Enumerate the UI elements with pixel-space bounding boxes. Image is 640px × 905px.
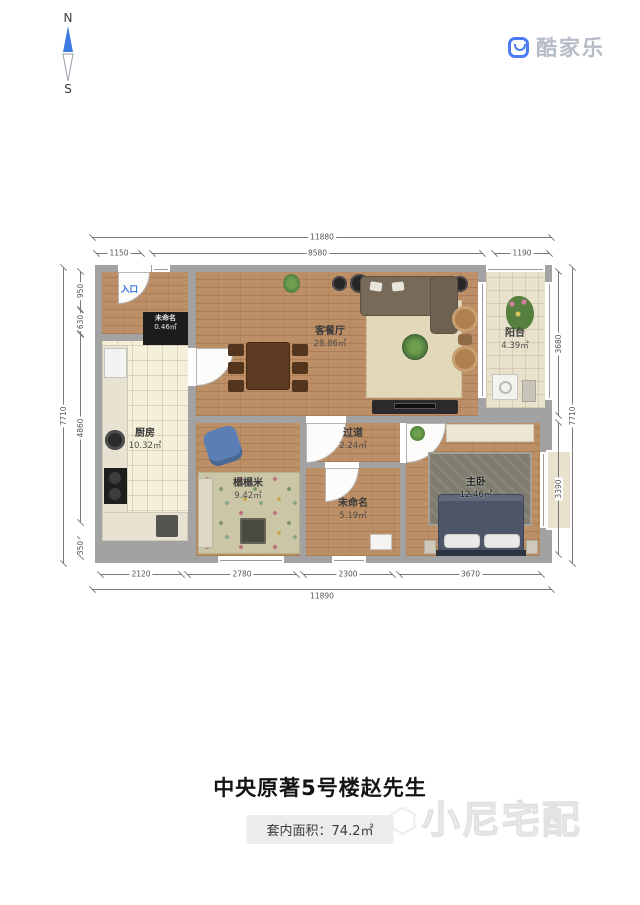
dim-left-overall: 7710 (63, 268, 64, 563)
dimension-label: 630 (77, 313, 85, 331)
dimension-label: 1150 (107, 249, 130, 257)
brand-logo: 酷家乐 (508, 32, 605, 62)
room-label-kitchen: 厨房 10.32㎡ (115, 428, 175, 451)
room-area: 2.24㎡ (327, 441, 379, 452)
dim-left-seg-4: 350 (80, 540, 81, 556)
wardrobe (198, 478, 213, 548)
balcony-cabinet (522, 380, 536, 402)
dim-left-seg-3: 4860 (80, 334, 81, 522)
dim-bottom-seg-1: 2120 (100, 574, 182, 575)
room-label-living: 客餐厅 28.86㎡ (302, 326, 358, 349)
tatami-window (218, 556, 284, 563)
kitchen-appliance (156, 515, 178, 537)
dimension-label: 2300 (336, 570, 359, 578)
washer-door-icon (499, 381, 512, 394)
inner-area-badge: 套内面积：74.2㎡ (247, 815, 394, 844)
room-area: 5.19㎡ (325, 511, 381, 522)
room-label-hallway: 过道 2.24㎡ (327, 428, 379, 451)
tv-screen (394, 403, 436, 409)
pillow (369, 281, 382, 292)
plant (410, 426, 425, 441)
dimension-label: 350 (77, 539, 85, 557)
dim-right-seg-2: 3390 (558, 423, 559, 554)
room-name: 客餐厅 (302, 326, 358, 339)
room-label-unnamed: 未命名 5.19㎡ (325, 498, 381, 521)
rattan-chair (452, 346, 478, 372)
unnamed-window (332, 556, 366, 563)
pillow (484, 534, 520, 548)
dim-bottom-seg-4: 3670 (399, 574, 542, 575)
entrance-door-opening (118, 265, 151, 272)
dresser (446, 424, 534, 442)
compass: N S (50, 12, 86, 96)
room-area: 0.46㎡ (143, 323, 188, 332)
dining-table (246, 342, 290, 390)
room-label-master: 主卧 12.46㎡ (448, 477, 504, 500)
plan-title: 中央原著5号楼赵先生 (0, 772, 640, 802)
dimension-label: 1190 (510, 249, 533, 257)
room-label-closet: 未命名 0.46㎡ (143, 314, 188, 332)
compass-north-label: N (64, 12, 73, 25)
balcony-sliding-door (478, 282, 486, 398)
dim-top-overall: 11880 (92, 237, 552, 238)
hallway-door-opening (306, 416, 346, 423)
speaker (332, 276, 347, 291)
washing-machine (492, 374, 518, 400)
dining-chair (228, 344, 244, 356)
watermark: ⬡ 小尼宅配 (388, 798, 582, 844)
room-name: 主卧 (448, 477, 504, 490)
dining-chair (228, 362, 244, 374)
dimension-label: 7710 (60, 404, 68, 427)
kujiale-smile-icon (508, 37, 529, 58)
tatami-table (240, 518, 266, 544)
compass-south-label: S (64, 83, 72, 96)
dining-chair (292, 380, 308, 392)
dimension-label: 950 (77, 282, 85, 300)
room-name: 未命名 (143, 314, 188, 323)
room-label-tatami: 榻榻米 9.42㎡ (220, 478, 276, 501)
small-cabinet (370, 534, 392, 550)
brand-name: 酷家乐 (536, 32, 605, 62)
nightstand (424, 540, 436, 554)
fridge (104, 348, 127, 378)
dimension-label: 11890 (308, 592, 336, 600)
burner (109, 488, 121, 500)
plant (283, 274, 300, 293)
room-area: 4.39㎡ (488, 341, 542, 352)
rattan-chair (452, 306, 478, 332)
dining-chair (228, 380, 244, 392)
dimension-label: 3680 (555, 332, 563, 355)
floorplan-page: N S 酷家乐 (0, 0, 640, 905)
dimension-label: 8580 (306, 249, 329, 257)
room-area: 10.32㎡ (115, 441, 175, 452)
dimension-label: 2780 (230, 570, 253, 578)
nightstand (526, 540, 538, 554)
balcony-side-window (545, 282, 552, 400)
room-area: 12.46㎡ (448, 490, 504, 501)
headboard (436, 550, 526, 556)
dim-top-seg-1: 1150 (96, 253, 142, 254)
dimension-label: 11880 (308, 233, 336, 241)
room-label-balcony: 阳台 4.39㎡ (488, 328, 542, 351)
balcony-plant (506, 296, 534, 330)
dim-right-overall: 7710 (572, 268, 573, 563)
balcony-top-window (486, 265, 545, 272)
dimension-label: 7710 (569, 404, 577, 427)
top-window (152, 265, 170, 272)
dimension-label: 2120 (129, 570, 152, 578)
coffee-table-plant (402, 334, 428, 360)
burner (109, 472, 121, 484)
room-name: 厨房 (115, 428, 175, 441)
dim-top-seg-2: 8580 (152, 253, 483, 254)
dim-bottom-seg-2: 2780 (187, 574, 297, 575)
side-table (458, 334, 472, 345)
dim-left-seg-2: 630 (80, 310, 81, 334)
dimension-label: 3390 (555, 477, 563, 500)
compass-needle-icon (59, 25, 77, 83)
room-area: 28.86㎡ (302, 339, 358, 350)
room-area: 9.42㎡ (220, 491, 276, 502)
dimension-label: 4860 (77, 416, 85, 439)
kitchen-door-opening (188, 348, 196, 386)
dim-top-seg-3: 1190 (494, 253, 550, 254)
dining-chair (292, 362, 308, 374)
room-name: 过道 (327, 428, 379, 441)
entrance-label: 入口 (121, 283, 138, 295)
dim-bottom-seg-3: 2300 (303, 574, 393, 575)
dim-bottom-overall: 11890 (92, 589, 552, 590)
dimension-label: 3670 (459, 570, 482, 578)
pillow (444, 534, 480, 548)
pillow (392, 281, 405, 291)
watermark-text: 小尼宅配 (422, 798, 582, 844)
dim-left-seg-1: 950 (80, 272, 81, 310)
dim-right-seg-1: 3680 (558, 272, 559, 415)
room-name: 未命名 (325, 498, 381, 511)
room-name: 阳台 (488, 328, 542, 341)
room-name: 榻榻米 (220, 478, 276, 491)
